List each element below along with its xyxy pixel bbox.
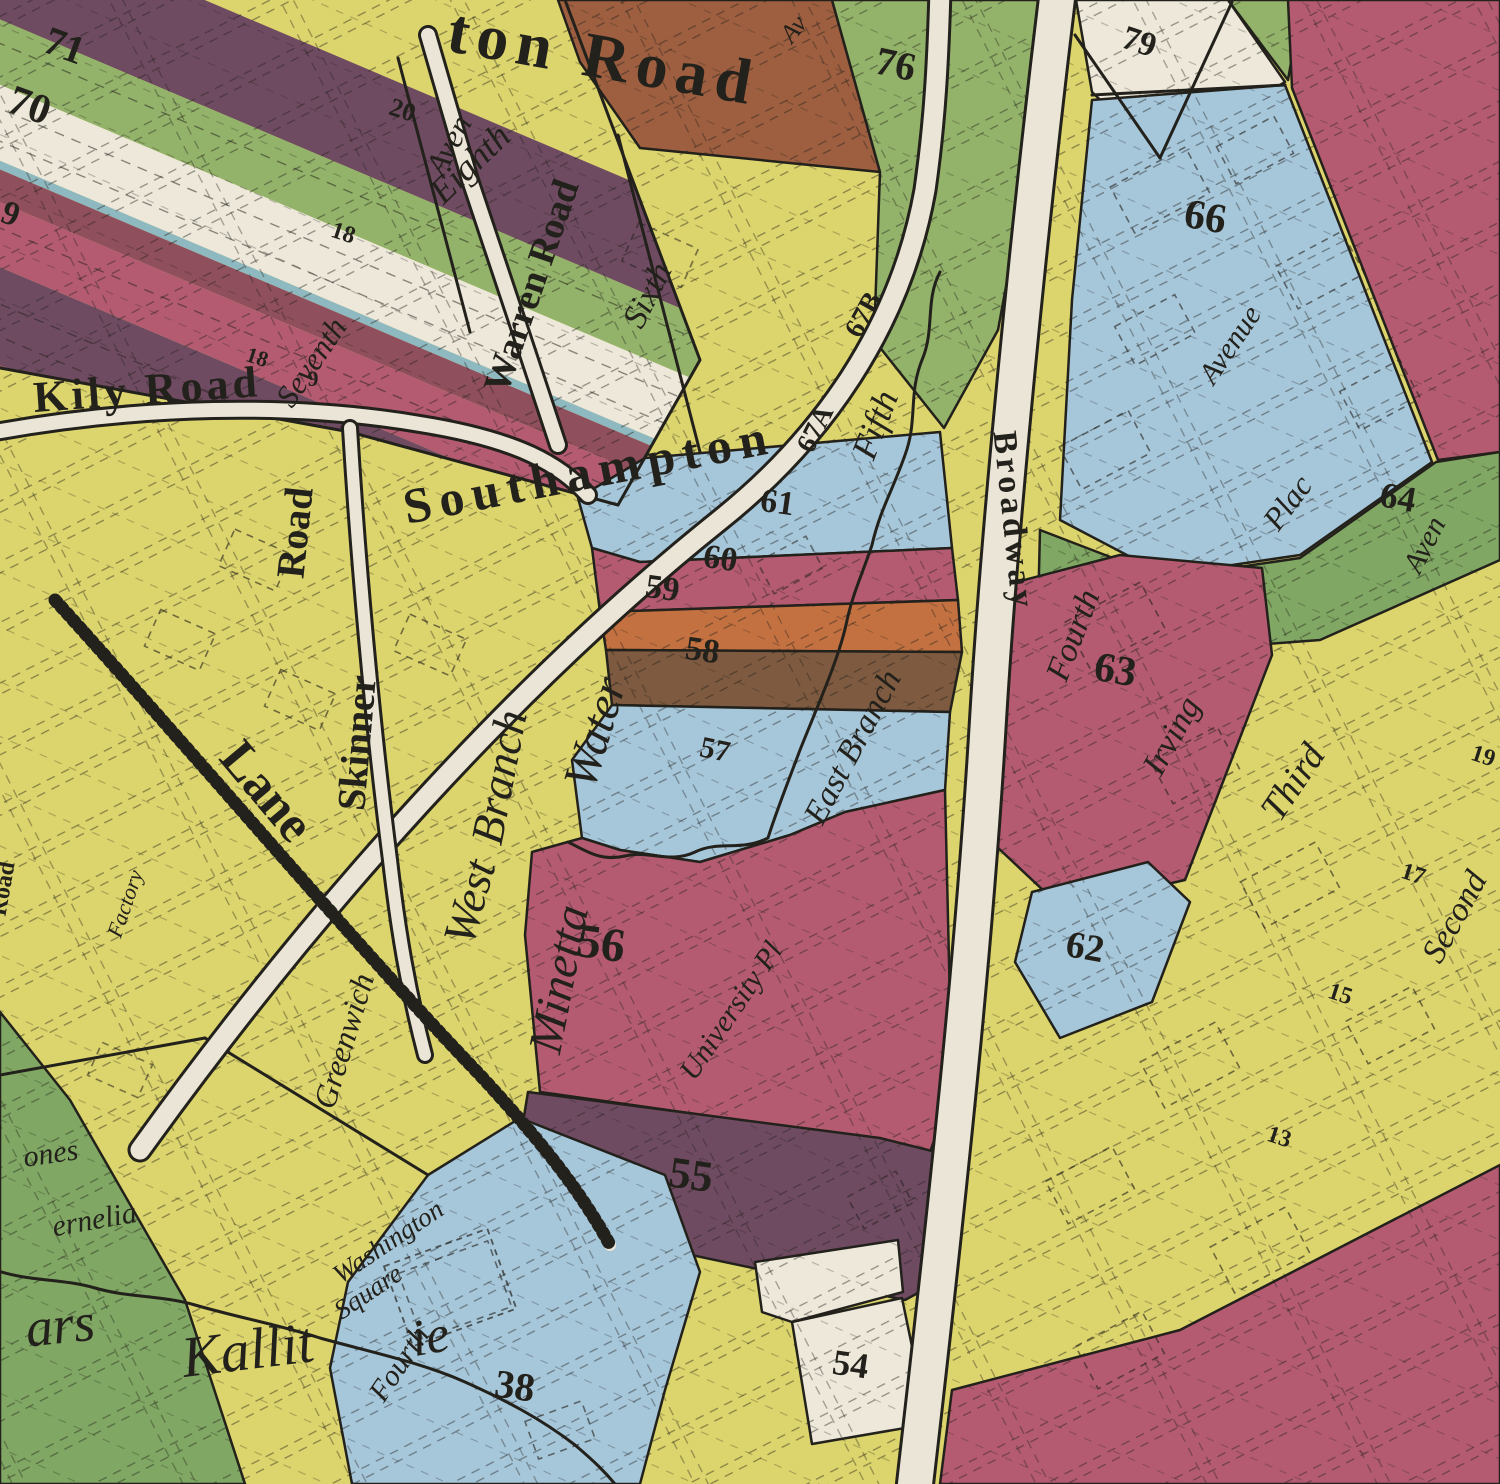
map-label-9: 9 bbox=[308, 366, 319, 391]
map-label-62: 62 bbox=[1063, 923, 1108, 971]
map-label-59: 59 bbox=[643, 568, 682, 609]
map-label-60: 60 bbox=[701, 538, 740, 579]
map-label-58: 58 bbox=[683, 630, 722, 671]
map-label-56: 56 bbox=[574, 914, 629, 973]
map-label-61: 61 bbox=[758, 482, 797, 523]
map-label-ars: ars bbox=[23, 1292, 98, 1359]
map-label-38: 38 bbox=[492, 1361, 538, 1411]
map-label-64: 64 bbox=[1377, 474, 1419, 520]
map-label-66: 66 bbox=[1181, 191, 1230, 244]
map-label-63: 63 bbox=[1091, 644, 1140, 697]
historical-farm-map[interactable]: 71709EighthSeventhAven2018189Warren Road… bbox=[0, 0, 1500, 1484]
map-label-55: 55 bbox=[666, 1147, 716, 1202]
map-label-54: 54 bbox=[830, 1342, 871, 1387]
map-label-road: Road bbox=[267, 485, 321, 580]
